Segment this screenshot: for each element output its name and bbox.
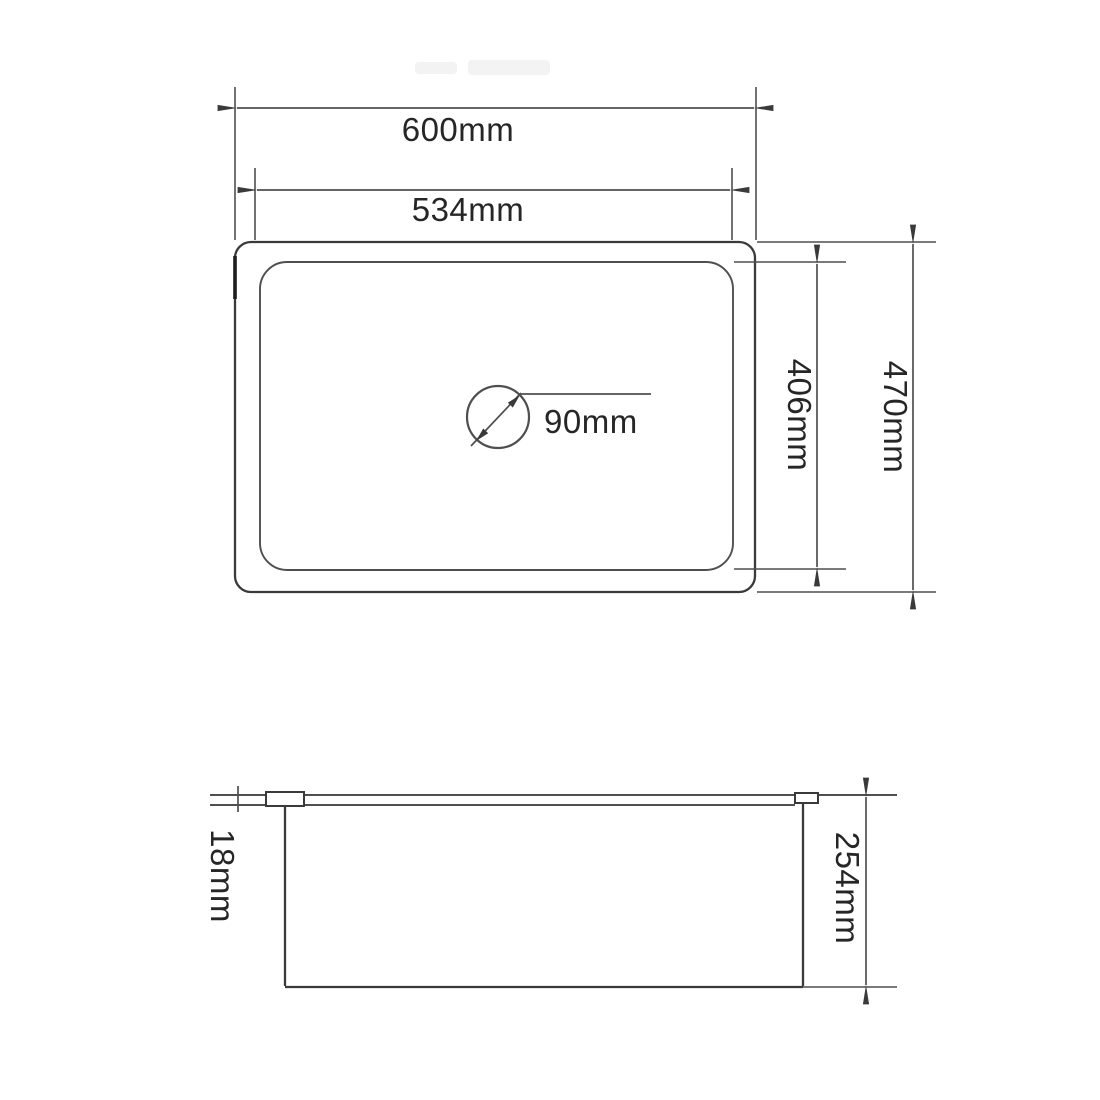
side-view: 18mm 254mm: [204, 786, 897, 987]
rim-height-label: 18mm: [204, 829, 241, 923]
dimension-inner-depth: 406mm: [734, 262, 846, 569]
top-view: 600mm 534mm 470mm 406mm: [235, 87, 936, 592]
sink-dimension-drawing: 600mm 534mm 470mm 406mm: [0, 0, 1100, 1100]
watermark-smudge: [468, 60, 550, 75]
dimension-rim-height: 18mm: [204, 786, 241, 923]
outer-width-label: 600mm: [402, 111, 515, 148]
bowl-depth-label: 254mm: [829, 832, 866, 945]
inner-width-label: 534mm: [412, 191, 525, 228]
dimension-inner-width: 534mm: [255, 168, 732, 240]
left-clip-block: [266, 792, 304, 806]
technical-drawing-canvas: 600mm 534mm 470mm 406mm: [0, 0, 1100, 1100]
top-view-bowl-outline: [260, 262, 733, 570]
watermark-smudge: [415, 62, 457, 74]
drain-diameter-label: 90mm: [544, 403, 638, 440]
outer-depth-label: 470mm: [877, 361, 914, 474]
inner-depth-label: 406mm: [781, 359, 818, 472]
drain-hole: 90mm: [467, 386, 651, 448]
dimension-bowl-depth: 254mm: [829, 797, 866, 985]
right-clip-block: [795, 793, 818, 803]
top-view-outer-outline: [235, 242, 755, 592]
